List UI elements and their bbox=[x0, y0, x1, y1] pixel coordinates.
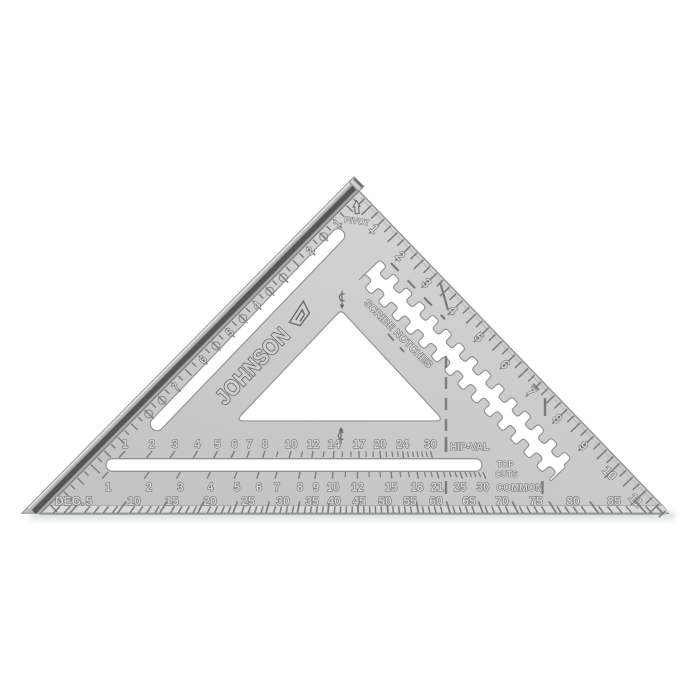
svg-text:7: 7 bbox=[246, 439, 252, 451]
svg-text:4: 4 bbox=[194, 439, 201, 451]
svg-text:17: 17 bbox=[353, 439, 366, 451]
svg-text:6: 6 bbox=[256, 482, 262, 494]
svg-text:12: 12 bbox=[351, 482, 364, 494]
svg-text:HIP-VAL: HIP-VAL bbox=[450, 442, 489, 453]
svg-text:3: 3 bbox=[172, 439, 178, 451]
svg-text:10: 10 bbox=[285, 439, 298, 451]
svg-text:15: 15 bbox=[385, 482, 398, 494]
svg-text:2: 2 bbox=[149, 439, 155, 451]
svg-text:10: 10 bbox=[127, 494, 141, 508]
svg-text:20: 20 bbox=[203, 494, 217, 508]
svg-text:20: 20 bbox=[374, 439, 387, 451]
svg-text:40: 40 bbox=[327, 494, 341, 508]
svg-text:21: 21 bbox=[431, 482, 444, 494]
svg-text:5: 5 bbox=[214, 439, 221, 451]
svg-text:TOP: TOP bbox=[497, 459, 514, 469]
svg-text:3: 3 bbox=[177, 482, 183, 494]
svg-text:45: 45 bbox=[352, 494, 366, 508]
svg-text:6: 6 bbox=[231, 439, 237, 451]
svg-text:7: 7 bbox=[274, 482, 280, 494]
svg-text:80: 80 bbox=[566, 494, 580, 508]
svg-text:COMMON: COMMON bbox=[496, 483, 543, 494]
svg-text:25: 25 bbox=[241, 494, 255, 508]
svg-text:50: 50 bbox=[378, 494, 392, 508]
svg-text:25: 25 bbox=[454, 482, 467, 494]
svg-text:15: 15 bbox=[165, 494, 179, 508]
svg-text:75: 75 bbox=[529, 494, 543, 508]
svg-text:DEG.: DEG. bbox=[55, 494, 84, 508]
svg-text:2: 2 bbox=[146, 482, 152, 494]
svg-text:18: 18 bbox=[411, 482, 424, 494]
svg-text:CUTS: CUTS bbox=[495, 469, 518, 479]
svg-text:5: 5 bbox=[86, 494, 93, 508]
svg-text:85: 85 bbox=[607, 494, 621, 508]
svg-text:1: 1 bbox=[105, 482, 112, 494]
svg-text:24: 24 bbox=[396, 439, 409, 451]
svg-text:35: 35 bbox=[305, 494, 319, 508]
svg-text:14: 14 bbox=[328, 439, 341, 451]
svg-text:60: 60 bbox=[429, 494, 443, 508]
svg-text:55: 55 bbox=[403, 494, 417, 508]
svg-text:10: 10 bbox=[327, 482, 340, 494]
svg-text:30: 30 bbox=[477, 482, 490, 494]
svg-text:65: 65 bbox=[462, 494, 476, 508]
svg-text:8: 8 bbox=[262, 439, 269, 451]
svg-text:30: 30 bbox=[276, 494, 290, 508]
svg-text:5: 5 bbox=[234, 482, 241, 494]
svg-text:4: 4 bbox=[207, 482, 214, 494]
svg-text:12: 12 bbox=[307, 439, 320, 451]
svg-text:8: 8 bbox=[297, 482, 304, 494]
svg-text:30: 30 bbox=[424, 439, 437, 451]
svg-text:9: 9 bbox=[313, 482, 319, 494]
svg-text:70: 70 bbox=[495, 494, 509, 508]
svg-text:1: 1 bbox=[122, 439, 129, 451]
